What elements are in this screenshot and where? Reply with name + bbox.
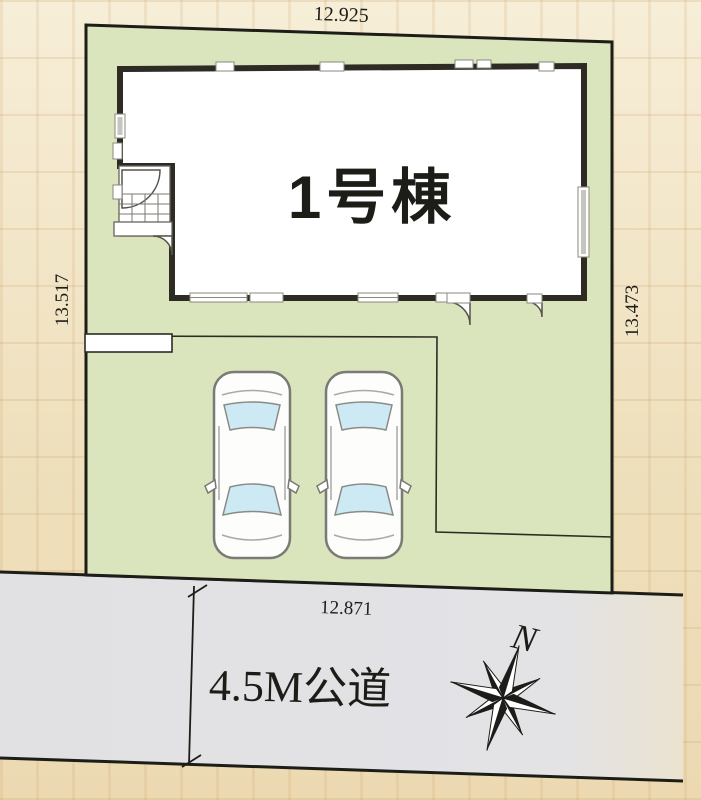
door-leaf: [527, 294, 542, 303]
window: [455, 60, 473, 68]
dimension-top: 12.925: [313, 3, 369, 27]
porch-window: [113, 143, 122, 159]
dimension-right: 13.473: [622, 285, 643, 337]
approach-step: [85, 334, 172, 352]
window: [250, 293, 283, 302]
site-plan: 1号棟 12.925 13.517 13.473 12.871 4.5M公道 N: [0, 0, 701, 800]
porch-window: [113, 185, 122, 199]
window: [320, 62, 344, 71]
road-label: 4.5M公道: [208, 661, 391, 715]
car-1: [205, 372, 299, 558]
window: [539, 62, 554, 71]
car-2: [317, 372, 411, 558]
door-leaf: [447, 293, 470, 303]
entry-step: [114, 222, 172, 236]
window: [216, 62, 234, 71]
dimension-frontage: 12.871: [320, 597, 373, 620]
dimension-left: 13.517: [52, 274, 73, 326]
site-plan-image: 1号棟 12.925 13.517 13.473 12.871 4.5M公道 N: [0, 0, 701, 800]
window: [477, 60, 491, 68]
building: 1号棟: [113, 60, 589, 325]
building-label: 1号棟: [288, 164, 456, 231]
